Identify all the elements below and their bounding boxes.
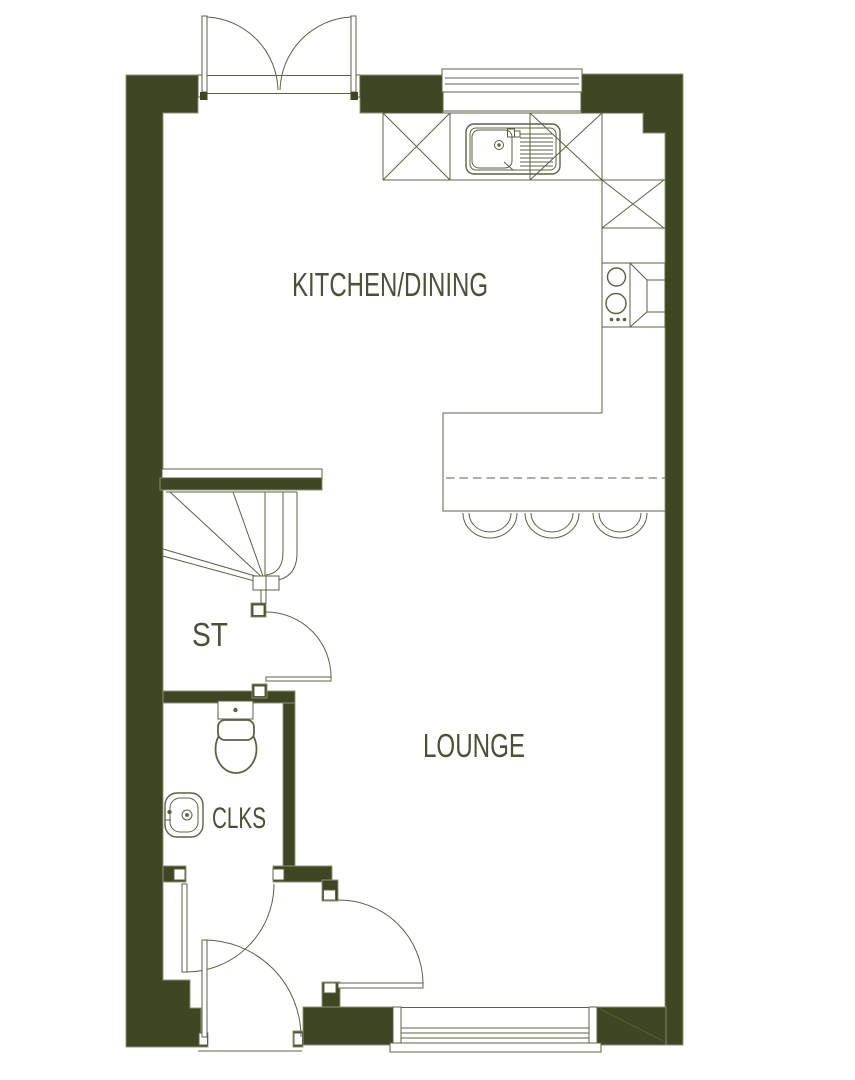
door-swing-arc (280, 17, 351, 90)
wc-icon (216, 701, 257, 773)
front-door-icon (198, 940, 302, 1051)
door-leaf (202, 940, 207, 1037)
door-leaf (266, 677, 331, 681)
room-label-stairs: ST (192, 616, 228, 653)
door-swing-arc (204, 940, 301, 1037)
floor-plan-page: KITCHEN/DINING LOUNGE ST CLKS (0, 0, 855, 1080)
door-swing-arc (207, 17, 278, 90)
bar-outline (443, 413, 665, 511)
wall-bottom-left-segment (303, 1007, 395, 1045)
wc-seat-lid (218, 720, 254, 740)
stool-icon (525, 513, 579, 538)
window-frame (442, 69, 582, 92)
hob-knob (616, 318, 620, 322)
stair-tread (163, 549, 262, 583)
jamb-plate (254, 686, 265, 697)
stair-balustrade-inner (266, 492, 283, 575)
window-reveal (393, 1007, 401, 1043)
kitchen-window-icon (442, 69, 582, 111)
stair-rail-stub (261, 590, 266, 604)
basin-tap-dot (185, 813, 189, 817)
door-swing-arc (338, 900, 423, 983)
jamb-plate (273, 869, 284, 880)
stool-icon (593, 513, 647, 538)
jamb-plate (324, 890, 336, 900)
walls (126, 74, 683, 1047)
breakfast-bar-icon (443, 413, 665, 511)
wall-bottom-right-segment (595, 1007, 666, 1045)
st-door-icon (266, 612, 331, 681)
hob-knob (610, 318, 614, 322)
clks-door-icon (182, 884, 274, 972)
door-leaf (338, 983, 423, 988)
door-leaf (202, 16, 207, 92)
kitchen-sink-icon (466, 124, 560, 174)
wall-clks-right (283, 703, 295, 868)
jamb-plate (174, 869, 185, 880)
wall-top-right-and-right (581, 74, 683, 1045)
door-hinge (200, 92, 208, 100)
bar-stools (463, 513, 647, 538)
room-label-lounge: LOUNGE (423, 727, 525, 764)
door-leaf (351, 16, 356, 92)
stair-balustrade-outer (266, 492, 297, 581)
door-swing-arc (266, 612, 331, 677)
window-reveal (589, 1007, 597, 1043)
stair-tread (170, 492, 264, 579)
stair-tread (233, 492, 264, 579)
lounge-window-icon (390, 1007, 601, 1052)
hob-knob (623, 318, 627, 322)
door-leaf (182, 884, 187, 972)
stool-icon (463, 513, 517, 538)
hob-icon (602, 263, 665, 327)
room-labels: KITCHEN/DINING LOUNGE ST CLKS (192, 266, 525, 835)
wc-button (233, 708, 237, 712)
wall-left (126, 75, 208, 1047)
unit-cross (602, 180, 664, 228)
window-frame (401, 1028, 589, 1043)
stairs-bulkhead (162, 469, 322, 478)
door-hinge (351, 92, 359, 100)
floor-plan-canvas: KITCHEN/DINING LOUNGE ST CLKS (0, 0, 855, 1080)
window-sill (390, 1043, 601, 1052)
room-label-cloakroom: CLKS (212, 802, 266, 835)
jamb-plate (324, 983, 336, 993)
newel-post (266, 576, 279, 590)
room-label-kitchen-dining: KITCHEN/DINING (292, 266, 488, 303)
wall-top-middle (360, 75, 443, 113)
newel-post (253, 576, 266, 590)
lounge-door-icon (338, 900, 423, 988)
jamb-plate (253, 605, 264, 616)
wash-basin-icon (165, 793, 203, 837)
french-doors (198, 16, 360, 100)
wall-stairs-head (160, 478, 322, 490)
unit-cross (383, 113, 450, 180)
basin-waste-dot (167, 810, 171, 814)
tap-dot (497, 143, 500, 146)
basin-outer (165, 793, 203, 837)
